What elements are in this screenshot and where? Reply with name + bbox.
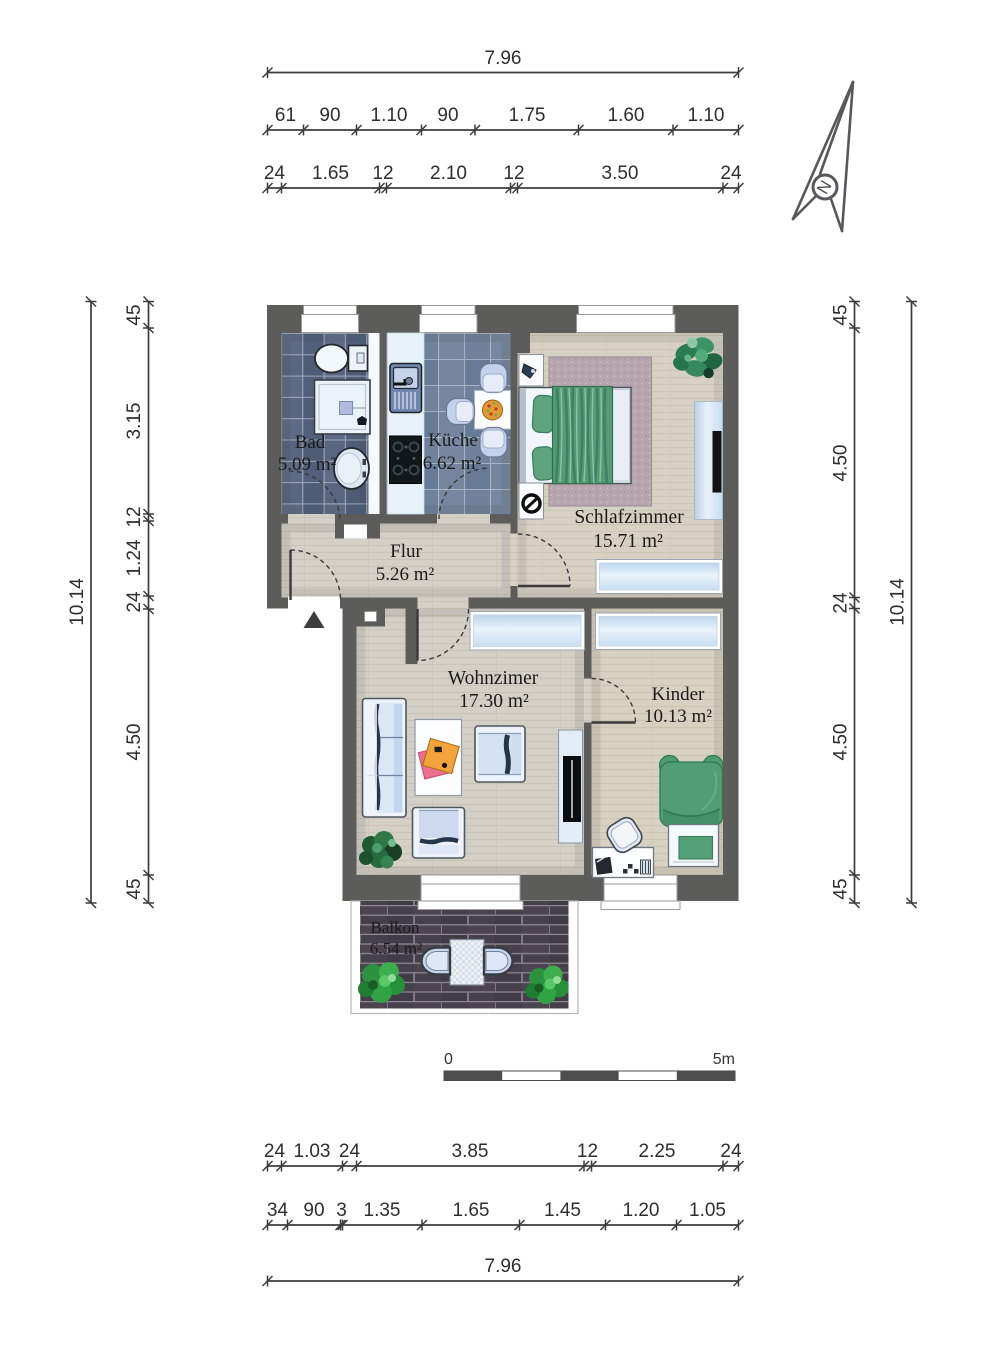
svg-text:Wohnzimer: Wohnzimer [448, 668, 539, 689]
svg-text:1.03: 1.03 [294, 1141, 331, 1162]
svg-text:1.05: 1.05 [689, 1200, 726, 1221]
svg-text:10.13 m²: 10.13 m² [644, 706, 712, 727]
svg-text:3.15: 3.15 [124, 403, 145, 440]
svg-text:Flur: Flur [390, 541, 422, 562]
svg-text:45: 45 [124, 878, 145, 899]
svg-text:17.30 m²: 17.30 m² [459, 691, 529, 712]
svg-text:Schlafzimmer: Schlafzimmer [574, 507, 684, 528]
svg-text:24: 24 [264, 163, 286, 184]
svg-text:24: 24 [720, 1141, 742, 1162]
svg-text:34: 34 [267, 1200, 289, 1221]
svg-text:90: 90 [437, 105, 458, 126]
svg-text:45: 45 [831, 878, 852, 899]
svg-text:24: 24 [720, 163, 742, 184]
svg-text:24: 24 [339, 1141, 361, 1162]
svg-text:1.45: 1.45 [544, 1200, 581, 1221]
svg-text:24: 24 [264, 1141, 286, 1162]
svg-text:45: 45 [831, 304, 852, 325]
svg-text:7.96: 7.96 [485, 48, 522, 69]
svg-text:6.54 m²: 6.54 m² [370, 939, 422, 958]
svg-text:12: 12 [503, 163, 524, 184]
svg-text:1.65: 1.65 [453, 1200, 490, 1221]
svg-text:10.14: 10.14 [888, 578, 909, 626]
svg-text:4.50: 4.50 [831, 724, 852, 761]
svg-text:4.50: 4.50 [831, 445, 852, 482]
svg-text:24: 24 [831, 592, 852, 614]
svg-text:Bad: Bad [295, 432, 326, 453]
svg-text:15.71 m²: 15.71 m² [593, 531, 663, 552]
svg-text:24: 24 [124, 591, 145, 613]
svg-text:1.10: 1.10 [688, 105, 725, 126]
svg-text:4.50: 4.50 [124, 724, 145, 761]
svg-text:3.50: 3.50 [602, 163, 639, 184]
svg-text:0: 0 [444, 1051, 453, 1068]
svg-text:1.60: 1.60 [608, 105, 645, 126]
svg-text:61: 61 [275, 105, 296, 126]
svg-text:6.62 m²: 6.62 m² [423, 453, 482, 474]
svg-text:5.09 m²: 5.09 m² [278, 454, 337, 475]
svg-text:12: 12 [372, 163, 393, 184]
svg-text:1.35: 1.35 [364, 1200, 401, 1221]
svg-text:Balkon: Balkon [370, 918, 420, 937]
svg-text:2.10: 2.10 [430, 163, 467, 184]
svg-text:1.10: 1.10 [371, 105, 408, 126]
svg-text:1.24: 1.24 [124, 539, 145, 576]
svg-text:2.25: 2.25 [639, 1141, 676, 1162]
svg-text:1.20: 1.20 [623, 1200, 660, 1221]
svg-text:5m: 5m [713, 1051, 735, 1068]
svg-text:5.26 m²: 5.26 m² [376, 564, 435, 585]
svg-text:3.85: 3.85 [452, 1141, 489, 1162]
svg-text:7.96: 7.96 [485, 1256, 522, 1277]
svg-text:12: 12 [577, 1141, 598, 1162]
svg-text:1.65: 1.65 [312, 163, 349, 184]
svg-text:10.14: 10.14 [67, 578, 88, 626]
svg-text:1.75: 1.75 [509, 105, 546, 126]
svg-text:12: 12 [124, 506, 145, 527]
svg-text:90: 90 [319, 105, 340, 126]
svg-text:45: 45 [124, 304, 145, 325]
svg-text:90: 90 [303, 1200, 324, 1221]
svg-text:Küche: Küche [428, 430, 478, 451]
svg-text:3: 3 [336, 1200, 347, 1221]
svg-text:Kinder: Kinder [652, 684, 705, 705]
